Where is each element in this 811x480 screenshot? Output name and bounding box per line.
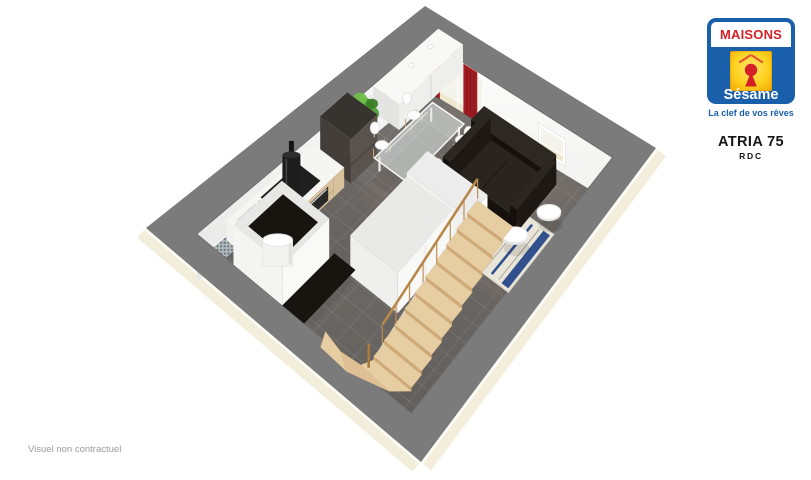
logo-house-icon xyxy=(730,51,772,91)
brand-name-top: MAISONS xyxy=(720,27,782,42)
plan-level-label: RDC xyxy=(690,151,811,161)
brand-block: MAISONS Sésame La clef de vos rêves ATRI… xyxy=(690,18,811,161)
water-heater xyxy=(263,234,293,266)
keyhole-icon xyxy=(730,51,772,91)
maisons-sesame-logo: MAISONS Sésame xyxy=(707,18,795,104)
logo-top-band: MAISONS xyxy=(711,22,791,47)
brand-name-bottom: Sésame xyxy=(707,87,795,103)
brand-tagline: La clef de vos rêves xyxy=(690,108,811,118)
plan-model-name: ATRIA 75 xyxy=(690,134,811,150)
disclaimer-note: Visuel non contractuel xyxy=(28,444,121,455)
